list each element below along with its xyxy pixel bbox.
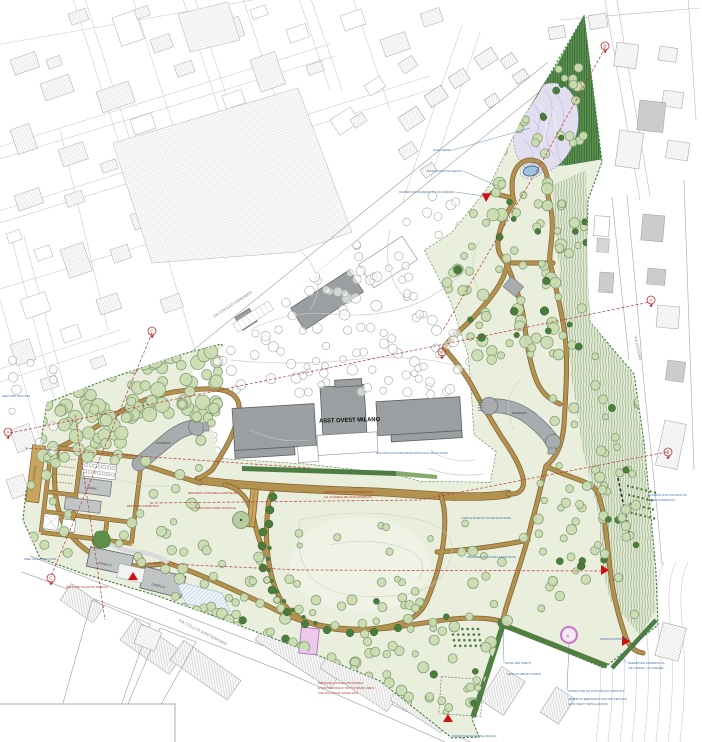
- svg-text:RIAPERTURA DI PICCOLA ROGGIA: RIAPERTURA DI PICCOLA ROGGIA: [452, 734, 497, 738]
- svg-text:SOLARIUM: SOLARIUM: [512, 411, 527, 415]
- svg-text:AREA ORTI INCLUSIVI: AREA ORTI INCLUSIVI: [2, 394, 30, 398]
- svg-text:GRUPPO DI ERBACEE ATTRATTIVE P: GRUPPO DI ERBACEE ATTRATTIVE PER API E: [568, 697, 627, 701]
- svg-text:RESTAURO STENDITOIO: RESTAURO STENDITOIO: [127, 504, 159, 508]
- svg-text:B: B: [603, 44, 606, 49]
- svg-text:NUOVA TOILETTE A SECCO: NUOVA TOILETTE A SECCO: [427, 169, 462, 173]
- svg-text:B: B: [666, 450, 669, 455]
- svg-text:SOLARIUM: SOLARIUM: [156, 441, 171, 445]
- svg-text:RESTAURO SCALETTA STORICA: RESTAURO SCALETTA STORICA: [66, 585, 108, 589]
- svg-text:RECUPERO FONTANELLA ESISTENTE: RECUPERO FONTANELLA ESISTENTE: [467, 555, 516, 559]
- svg-text:RIAPERTURA INGRESSO DA: RIAPERTURA INGRESSO DA: [628, 661, 665, 665]
- svg-text:RECUPERO FONTANELLA ESISTENTE: RECUPERO FONTANELLA ESISTENTE: [188, 491, 237, 495]
- svg-text:A: A: [649, 298, 652, 303]
- svg-text:RESTAURO CANCELLATA STORICA: RESTAURO CANCELLATA STORICA: [318, 681, 363, 685]
- svg-text:ALTRI INSETTI IMPOLLINATORI: ALTRI INSETTI IMPOLLINATORI: [568, 702, 608, 706]
- svg-text:HOTEL PER INSETTI: HOTEL PER INSETTI: [505, 661, 531, 665]
- svg-text:A: A: [440, 350, 443, 355]
- svg-text:RESTAURO CAMPO DA BOCCE: RESTAURO CAMPO DA BOCCE: [196, 506, 236, 510]
- svg-text:VIA CONDRA - VIA GRANGE: VIA CONDRA - VIA GRANGE: [628, 666, 664, 670]
- svg-text:E SOSTITUZIONE DI TRATTI D'MUR: E SOSTITUZIONE DI TRATTI D'MURO CIECO: [318, 686, 374, 690]
- svg-text:APIARIO ESISTENTE: APIARIO ESISTENTE: [600, 637, 627, 641]
- svg-text:STORICO-DIDATTICA: STORICO-DIDATTICA: [648, 498, 675, 502]
- svg-text:A E. JUCKER E RELATIVA GRADINA: A E. JUCKER E RELATIVA GRADINATA: [324, 495, 372, 499]
- svg-text:A: A: [6, 430, 9, 435]
- svg-text:RIAPERTURA INGRESSO DA VIA FER: RIAPERTURA INGRESSO DA VIA FERRARIS: [399, 190, 455, 194]
- svg-text:CON UNA NUOVA CANCELLATA: CON UNA NUOVA CANCELLATA: [318, 691, 358, 695]
- svg-text:SIEPE DI ARBUSTI FIORITI: SIEPE DI ARBUSTI FIORITI: [507, 672, 541, 676]
- svg-text:RESTAURO BUSTO COMMEMORATIVO: RESTAURO BUSTO COMMEMORATIVO: [324, 490, 374, 494]
- svg-text:MESSA A DIMORA DI NUOVA SIEPE: MESSA A DIMORA DI NUOVA SIEPE BASSA PER …: [376, 451, 448, 455]
- svg-text:APIARIO PER API CON FINALITA': APIARIO PER API CON FINALITA' DIDATTICA: [568, 689, 625, 693]
- svg-text:AREA GIOCHI INCLUSIVA: AREA GIOCHI INCLUSIVA: [24, 557, 56, 561]
- svg-text:COMPLETAMENTO FILARE ESISTENTE: COMPLETAMENTO FILARE ESISTENTE: [461, 516, 511, 520]
- svg-text:RAIN GARDEN: RAIN GARDEN: [433, 148, 452, 152]
- svg-text:FILARE DI VITE CON FINALITA': FILARE DI VITE CON FINALITA': [648, 493, 688, 497]
